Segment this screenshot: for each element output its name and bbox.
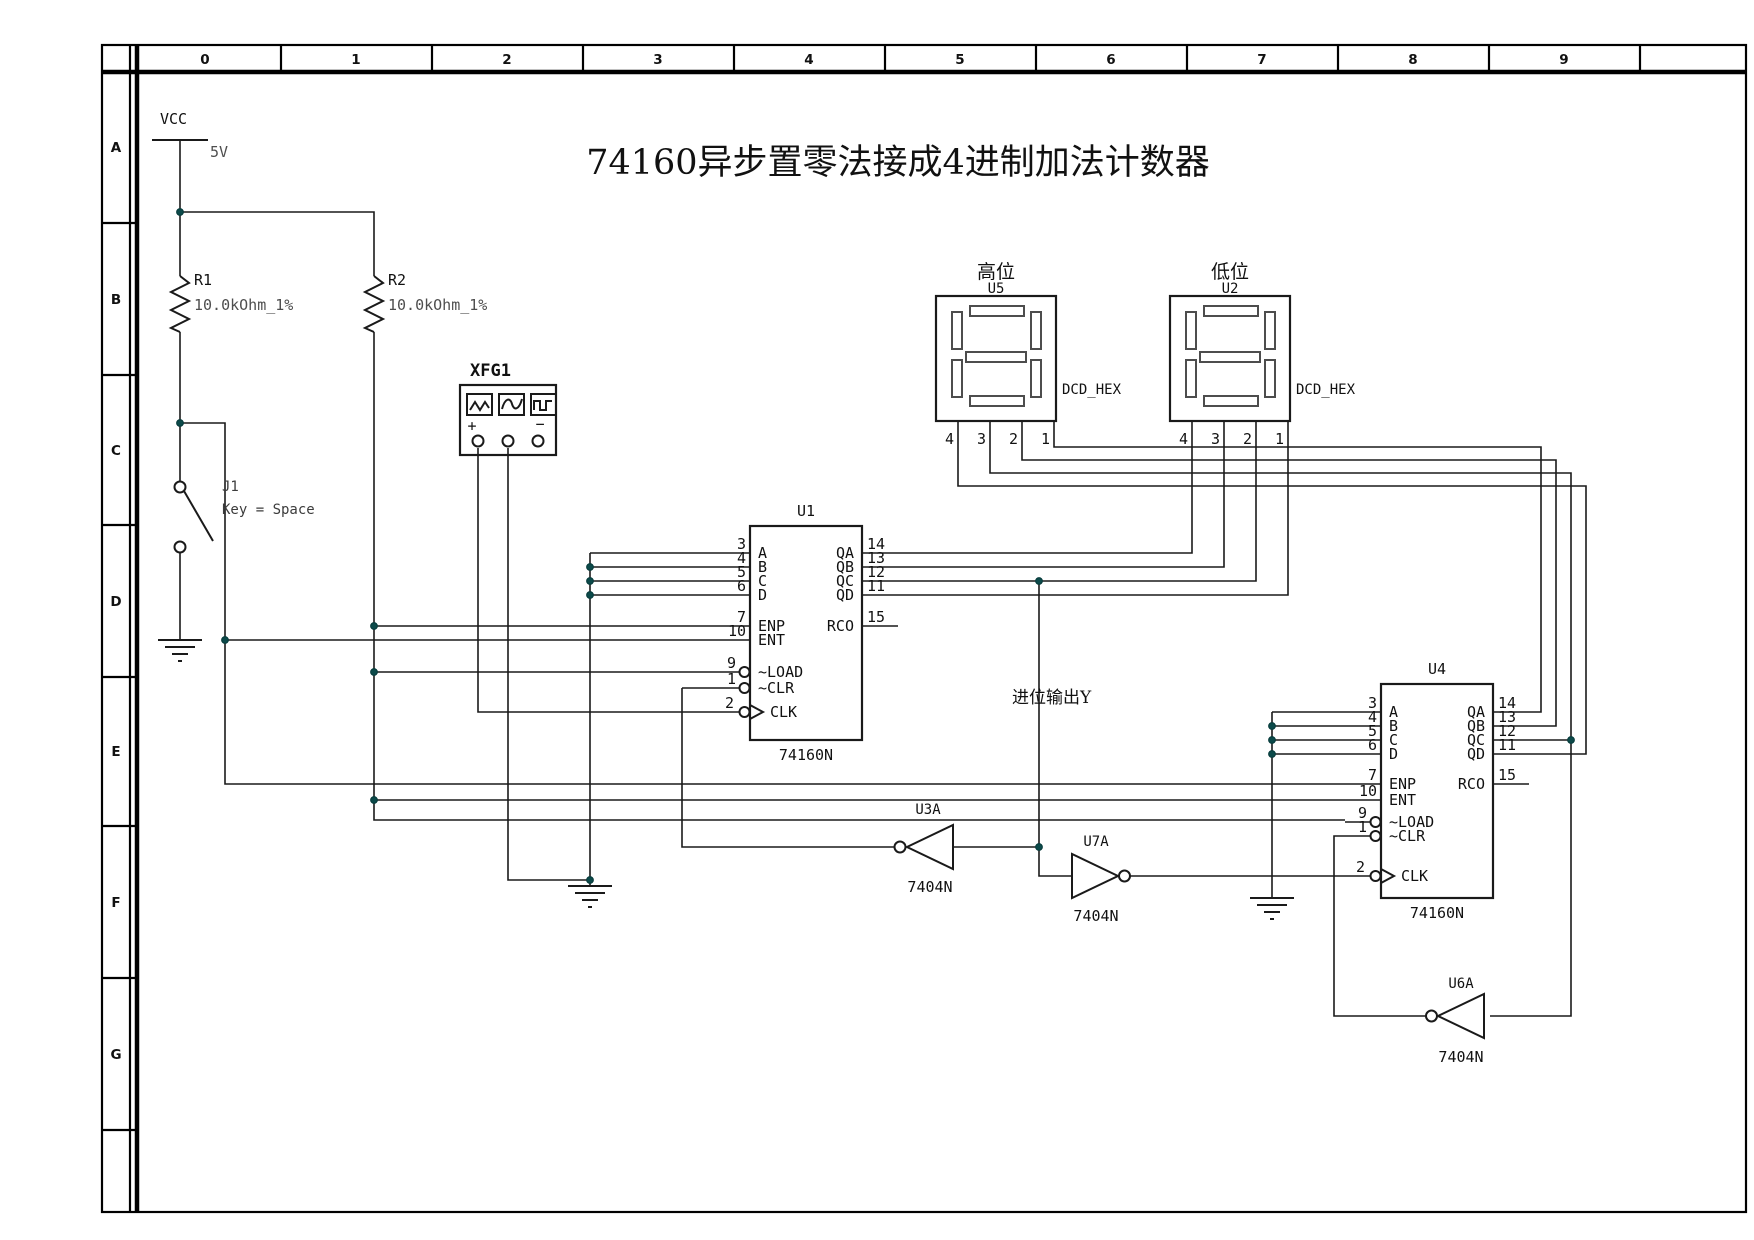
inverter-u6a[interactable]: U6A 7404N xyxy=(1426,976,1484,1066)
junction-dot xyxy=(1568,737,1575,744)
display-u2[interactable]: 低位 U2 4 3 2 1 DCD_HEX xyxy=(1170,261,1356,448)
ruler-col-2: 2 xyxy=(502,52,511,68)
ruler-col-5: 5 xyxy=(955,52,964,68)
junction-dot xyxy=(587,564,594,571)
function-generator-xfg1[interactable]: XFG1 + − xyxy=(460,361,556,455)
u1-pin-label: RCO xyxy=(827,617,854,635)
u2-ref: U2 xyxy=(1222,281,1239,297)
u4-pin-label: ENT xyxy=(1389,791,1416,809)
u6a-part: 7404N xyxy=(1438,1048,1483,1066)
u4-clk-edge-icon xyxy=(1381,869,1394,883)
junction-dot xyxy=(1269,723,1276,730)
chip-u1[interactable]: U1 74160N 3 4 5 6 7 10 9 1 2 A B C D ENP… xyxy=(714,502,898,764)
u4-pin-number: 2 xyxy=(1356,858,1365,876)
j1-key-label: Key = Space xyxy=(222,502,315,518)
u2-heading: 低位 xyxy=(1211,261,1249,283)
wire-u4-qb[interactable] xyxy=(1022,421,1556,726)
ground-symbol-j1[interactable] xyxy=(158,640,202,661)
u5-pin-number: 3 xyxy=(977,430,986,448)
ruler-rows: A B C D E F G xyxy=(110,140,121,1063)
schematic-title: 74160异步置零法接成4进制加法计数器 xyxy=(586,143,1210,183)
u6a-ref: U6A xyxy=(1448,976,1474,992)
junction-dot xyxy=(371,623,378,630)
schematic-canvas: 0 1 2 3 4 5 6 7 8 9 A B C D E F G 74160异… xyxy=(0,0,1754,1240)
u4-part: 74160N xyxy=(1410,904,1464,922)
u5-ref: U5 xyxy=(988,281,1005,297)
inverter-triangle-right-icon xyxy=(1072,854,1118,898)
r2-ref: R2 xyxy=(388,271,406,289)
inverter-u3a[interactable]: U3A 7404N xyxy=(895,802,954,896)
u1-pin-number: 10 xyxy=(728,622,746,640)
ground-symbol-u4[interactable] xyxy=(1250,898,1294,919)
ruler-row-A: A xyxy=(111,140,122,156)
u2-pin-number: 4 xyxy=(1179,430,1188,448)
ruler-col-1: 1 xyxy=(351,52,360,68)
junction-dot xyxy=(1036,844,1043,851)
u1-pin-number: 2 xyxy=(725,694,734,712)
sine-wave-glyph xyxy=(502,399,522,409)
ruler-row-D: D xyxy=(110,594,121,610)
u7a-part: 7404N xyxy=(1073,907,1118,925)
xfg1-minus-mark: − xyxy=(535,415,544,433)
junction-dot xyxy=(371,669,378,676)
u1-pin-number: 11 xyxy=(867,577,885,595)
switch-terminal xyxy=(175,542,186,553)
row-dividers xyxy=(102,223,137,1130)
junction-dot xyxy=(371,797,378,804)
xfg1-common-terminal[interactable] xyxy=(503,436,514,447)
u4-pin-label: CLK xyxy=(1401,867,1428,885)
junction-dot xyxy=(587,592,594,599)
u4-pin-number: 1 xyxy=(1358,818,1367,836)
wire-u1-abcd-bus[interactable] xyxy=(590,553,714,886)
vcc-label: VCC xyxy=(160,110,187,128)
u4-pin-number: 6 xyxy=(1368,736,1377,754)
ruler-row-B: B xyxy=(111,292,121,308)
junction-dot xyxy=(587,877,594,884)
u1-pin-label: ~CLR xyxy=(758,679,795,697)
junction-dot xyxy=(1269,737,1276,744)
u4-clk-bubble-icon xyxy=(1371,871,1381,881)
u2-pin-number: 3 xyxy=(1211,430,1220,448)
u4-clr-bubble-icon xyxy=(1371,831,1381,841)
seven-segment-icon xyxy=(952,306,1041,406)
u1-pin-label: CLK xyxy=(770,703,797,721)
resistor-r1[interactable]: R1 10.0kOhm_1% xyxy=(171,271,293,332)
u5-heading: 高位 xyxy=(977,261,1015,283)
ruler-col-0: 0 xyxy=(200,52,209,68)
ruler-row-F: F xyxy=(111,895,120,911)
r1-ref: R1 xyxy=(194,271,212,289)
r2-value: 10.0kOhm_1% xyxy=(388,296,487,314)
u1-load-bubble-icon xyxy=(740,667,750,677)
triangle-wave-glyph xyxy=(470,402,489,410)
u1-pin-label: D xyxy=(758,586,767,604)
u1-pin-label: QD xyxy=(836,586,854,604)
r1-value: 10.0kOhm_1% xyxy=(194,296,293,314)
triangle-wave-icon xyxy=(467,394,492,415)
ground-icon xyxy=(568,886,612,907)
j1-ref: J1 xyxy=(222,479,239,495)
switch-terminal xyxy=(175,482,186,493)
u4-pin-label: RCO xyxy=(1458,775,1485,793)
resistor-r2[interactable]: R2 10.0kOhm_1% xyxy=(365,271,487,332)
u4-ref: U4 xyxy=(1428,660,1446,678)
sheet-border xyxy=(102,45,1746,1212)
u4-pin-label: ~CLR xyxy=(1389,827,1426,845)
u5-pin-number: 1 xyxy=(1041,430,1050,448)
inverter-triangle-left-icon xyxy=(1438,994,1484,1038)
ruler-row-G: G xyxy=(110,1047,121,1063)
u1-clk-edge-icon xyxy=(750,705,763,719)
ruler-row-C: C xyxy=(111,443,121,459)
u1-pin-number: 6 xyxy=(737,577,746,595)
seven-segment-icon xyxy=(1186,306,1275,406)
xfg1-plus-mark: + xyxy=(467,417,476,435)
u7a-ref: U7A xyxy=(1083,834,1109,850)
resistor-zigzag xyxy=(171,276,189,332)
chip-u4[interactable]: U4 74160N 3 4 5 6 7 10 9 1 2 A B C D ENP… xyxy=(1345,660,1529,922)
u4-load-bubble-icon xyxy=(1371,817,1381,827)
xfg1-minus-terminal[interactable] xyxy=(533,436,544,447)
ground-icon xyxy=(158,640,202,661)
u3a-ref: U3A xyxy=(915,802,941,818)
u5-part: DCD_HEX xyxy=(1062,382,1122,398)
ruler-col-9: 9 xyxy=(1559,52,1568,68)
junction-dot xyxy=(222,637,229,644)
u2-pin-number: 2 xyxy=(1243,430,1252,448)
wire-xfg-com[interactable] xyxy=(508,448,590,880)
u4-pin-number: 15 xyxy=(1498,766,1516,784)
xfg1-plus-terminal[interactable] xyxy=(473,436,484,447)
vcc-source[interactable]: VCC 5V xyxy=(152,110,228,161)
u1-pin-label: ENT xyxy=(758,631,785,649)
junction-dot xyxy=(587,578,594,585)
u1-clk-bubble-icon xyxy=(740,707,750,717)
inverter-triangle-left-icon xyxy=(907,825,953,869)
ground-symbol-xfg[interactable] xyxy=(568,886,612,907)
ruler-col-6: 6 xyxy=(1106,52,1115,68)
ruler-col-7: 7 xyxy=(1257,52,1266,68)
ruler-col-8: 8 xyxy=(1408,52,1417,68)
u5-pin-number: 2 xyxy=(1009,430,1018,448)
u1-pin-number: 1 xyxy=(727,670,736,688)
u3a-part: 7404N xyxy=(907,878,952,896)
u1-part: 74160N xyxy=(779,746,833,764)
u4-pin-number: 10 xyxy=(1359,782,1377,800)
junction-dot xyxy=(177,209,184,216)
ground-icon xyxy=(1250,898,1294,919)
junction-dot xyxy=(177,420,184,427)
switch-arm xyxy=(184,491,213,541)
u4-pin-number: 11 xyxy=(1498,736,1516,754)
wire-qc-to-inverters[interactable] xyxy=(953,581,1072,876)
square-wave-glyph xyxy=(534,401,552,410)
inverter-bubble-icon xyxy=(1119,871,1130,882)
resistor-zigzag xyxy=(365,276,383,332)
inverter-bubble-icon xyxy=(1426,1011,1437,1022)
u1-pin-number: 15 xyxy=(867,608,885,626)
ruler-col-3: 3 xyxy=(653,52,662,68)
inverter-bubble-icon xyxy=(895,842,906,853)
carry-output-label: 进位输出Y xyxy=(1012,688,1092,708)
u1-ref: U1 xyxy=(797,502,815,520)
display-u5[interactable]: 高位 U5 4 3 2 1 DCD_HEX xyxy=(936,261,1122,448)
switch-j1[interactable]: J1 Key = Space xyxy=(175,479,315,553)
junction-dot xyxy=(1269,751,1276,758)
u5-pin-number: 4 xyxy=(945,430,954,448)
u4-pin-label: D xyxy=(1389,745,1398,763)
ruler-row-E: E xyxy=(111,744,120,760)
u2-part: DCD_HEX xyxy=(1296,382,1356,398)
u4-pin-label: QD xyxy=(1467,745,1485,763)
xfg1-ref: XFG1 xyxy=(470,361,511,381)
u1-clr-bubble-icon xyxy=(740,683,750,693)
junction-dot xyxy=(1036,578,1043,585)
sheet-frame: 0 1 2 3 4 5 6 7 8 9 A B C D E F G xyxy=(102,45,1746,1212)
u2-pin-number: 1 xyxy=(1275,430,1284,448)
inverter-u7a[interactable]: U7A 7404N xyxy=(1072,834,1130,925)
ruler-col-4: 4 xyxy=(804,52,813,68)
vcc-value: 5V xyxy=(210,143,228,161)
